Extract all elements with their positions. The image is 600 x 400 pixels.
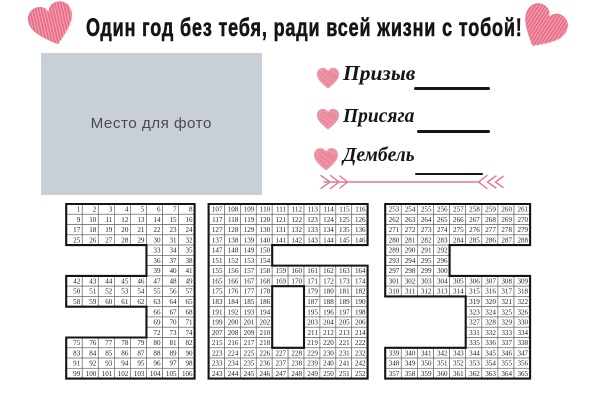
svg-text:49: 49 <box>186 277 194 285</box>
svg-text:259: 259 <box>485 206 496 214</box>
svg-text:120: 120 <box>260 216 271 224</box>
svg-text:47: 47 <box>153 277 161 285</box>
svg-text:75: 75 <box>73 339 81 347</box>
svg-text:124: 124 <box>323 216 334 224</box>
svg-text:92: 92 <box>89 360 97 368</box>
svg-text:284: 284 <box>453 236 464 244</box>
svg-text:88: 88 <box>153 349 161 357</box>
svg-text:157: 157 <box>244 267 255 275</box>
svg-text:150: 150 <box>260 247 271 255</box>
svg-text:135: 135 <box>339 226 350 234</box>
svg-text:9: 9 <box>77 216 81 224</box>
svg-text:272: 272 <box>405 226 416 234</box>
svg-text:339: 339 <box>389 349 400 357</box>
svg-text:27: 27 <box>105 236 113 244</box>
svg-text:274: 274 <box>437 226 448 234</box>
svg-text:101: 101 <box>102 370 113 378</box>
svg-text:295: 295 <box>421 257 432 265</box>
svg-text:94: 94 <box>121 360 129 368</box>
svg-text:158: 158 <box>260 267 271 275</box>
svg-text:78: 78 <box>121 339 129 347</box>
svg-text:309: 309 <box>517 277 528 285</box>
svg-text:260: 260 <box>501 206 512 214</box>
svg-text:44: 44 <box>105 277 113 285</box>
svg-text:261: 261 <box>517 206 528 214</box>
svg-text:235: 235 <box>244 360 255 368</box>
svg-text:66: 66 <box>153 308 161 316</box>
svg-text:256: 256 <box>437 206 448 214</box>
svg-text:242: 242 <box>355 360 366 368</box>
svg-text:82: 82 <box>186 339 194 347</box>
svg-text:93: 93 <box>105 360 113 368</box>
svg-text:20: 20 <box>121 226 129 234</box>
svg-text:37: 37 <box>169 257 177 265</box>
svg-text:347: 347 <box>517 349 528 357</box>
svg-text:220: 220 <box>323 339 334 347</box>
svg-text:8: 8 <box>189 206 193 214</box>
svg-text:64: 64 <box>169 298 177 306</box>
svg-text:177: 177 <box>244 288 255 296</box>
svg-text:290: 290 <box>405 247 416 255</box>
svg-text:134: 134 <box>323 226 334 234</box>
svg-text:318: 318 <box>517 288 528 296</box>
svg-text:342: 342 <box>437 349 448 357</box>
svg-text:15: 15 <box>169 216 177 224</box>
svg-text:53: 53 <box>121 288 129 296</box>
svg-text:40: 40 <box>169 267 177 275</box>
svg-text:1: 1 <box>77 206 81 214</box>
svg-text:154: 154 <box>260 257 271 265</box>
svg-text:52: 52 <box>105 288 113 296</box>
svg-text:365: 365 <box>517 370 528 378</box>
svg-text:91: 91 <box>73 360 81 368</box>
svg-text:21: 21 <box>137 226 145 234</box>
svg-text:286: 286 <box>485 236 496 244</box>
svg-text:241: 241 <box>339 360 350 368</box>
svg-text:206: 206 <box>355 319 366 327</box>
svg-text:10: 10 <box>89 216 97 224</box>
svg-text:153: 153 <box>244 257 255 265</box>
svg-text:268: 268 <box>485 216 496 224</box>
svg-text:71: 71 <box>186 319 194 327</box>
svg-text:144: 144 <box>323 236 334 244</box>
svg-text:194: 194 <box>260 308 271 316</box>
svg-text:270: 270 <box>517 216 528 224</box>
svg-text:352: 352 <box>453 360 464 368</box>
svg-text:321: 321 <box>501 298 512 306</box>
svg-text:275: 275 <box>453 226 464 234</box>
svg-text:252: 252 <box>355 370 366 378</box>
svg-text:139: 139 <box>244 236 255 244</box>
svg-text:145: 145 <box>339 236 350 244</box>
svg-text:121: 121 <box>275 216 286 224</box>
svg-text:5: 5 <box>141 206 145 214</box>
svg-text:160: 160 <box>291 267 302 275</box>
svg-text:87: 87 <box>137 349 145 357</box>
svg-text:288: 288 <box>517 236 528 244</box>
svg-text:251: 251 <box>339 370 350 378</box>
svg-text:115: 115 <box>339 206 350 214</box>
svg-text:114: 114 <box>323 206 334 214</box>
svg-text:231: 231 <box>339 349 350 357</box>
svg-text:45: 45 <box>121 277 129 285</box>
svg-text:322: 322 <box>517 298 528 306</box>
svg-text:127: 127 <box>212 226 223 234</box>
svg-text:211: 211 <box>308 329 319 337</box>
svg-text:173: 173 <box>339 277 350 285</box>
svg-text:29: 29 <box>137 236 145 244</box>
svg-text:324: 324 <box>485 308 496 316</box>
svg-text:207: 207 <box>212 329 223 337</box>
svg-text:6: 6 <box>157 206 161 214</box>
svg-text:90: 90 <box>186 349 194 357</box>
svg-text:41: 41 <box>186 267 194 275</box>
svg-text:330: 330 <box>517 319 528 327</box>
svg-text:80: 80 <box>153 339 161 347</box>
svg-text:161: 161 <box>307 267 318 275</box>
svg-text:205: 205 <box>339 319 350 327</box>
svg-text:292: 292 <box>437 247 448 255</box>
svg-text:130: 130 <box>260 226 271 234</box>
svg-text:156: 156 <box>228 267 239 275</box>
svg-text:327: 327 <box>469 319 480 327</box>
svg-text:103: 103 <box>134 370 145 378</box>
svg-text:129: 129 <box>244 226 255 234</box>
svg-text:54: 54 <box>137 288 145 296</box>
svg-text:111: 111 <box>276 206 287 214</box>
svg-text:253: 253 <box>389 206 400 214</box>
svg-text:98: 98 <box>186 360 194 368</box>
svg-text:316: 316 <box>485 288 496 296</box>
svg-text:25: 25 <box>73 236 81 244</box>
svg-text:332: 332 <box>485 329 496 337</box>
svg-text:305: 305 <box>453 277 464 285</box>
svg-text:267: 267 <box>469 216 480 224</box>
svg-text:247: 247 <box>275 370 286 378</box>
svg-text:140: 140 <box>260 236 271 244</box>
svg-text:222: 222 <box>355 339 366 347</box>
svg-text:133: 133 <box>307 226 318 234</box>
svg-text:255: 255 <box>421 206 432 214</box>
svg-text:72: 72 <box>153 329 161 337</box>
svg-text:281: 281 <box>405 236 416 244</box>
svg-text:179: 179 <box>307 288 318 296</box>
svg-text:228: 228 <box>291 349 302 357</box>
svg-text:300: 300 <box>437 267 448 275</box>
svg-text:276: 276 <box>469 226 480 234</box>
svg-text:331: 331 <box>469 329 480 337</box>
svg-text:30: 30 <box>153 236 161 244</box>
svg-text:278: 278 <box>501 226 512 234</box>
svg-text:58: 58 <box>73 298 81 306</box>
svg-text:117: 117 <box>212 216 223 224</box>
svg-text:155: 155 <box>212 267 223 275</box>
svg-text:70: 70 <box>169 319 177 327</box>
svg-text:79: 79 <box>137 339 145 347</box>
svg-text:31: 31 <box>169 236 177 244</box>
svg-text:257: 257 <box>453 206 464 214</box>
svg-text:11: 11 <box>106 216 113 224</box>
svg-text:287: 287 <box>501 236 512 244</box>
svg-text:202: 202 <box>260 319 271 327</box>
svg-text:248: 248 <box>291 370 302 378</box>
svg-text:193: 193 <box>244 308 255 316</box>
svg-text:204: 204 <box>323 319 334 327</box>
svg-text:215: 215 <box>212 339 223 347</box>
svg-text:289: 289 <box>389 247 400 255</box>
svg-text:280: 280 <box>389 236 400 244</box>
svg-text:201: 201 <box>244 319 255 327</box>
svg-text:232: 232 <box>355 349 366 357</box>
svg-text:56: 56 <box>169 288 177 296</box>
svg-text:119: 119 <box>244 216 255 224</box>
svg-text:112: 112 <box>292 206 303 214</box>
svg-text:109: 109 <box>244 206 255 214</box>
svg-text:108: 108 <box>228 206 239 214</box>
svg-text:230: 230 <box>323 349 334 357</box>
svg-text:185: 185 <box>244 298 255 306</box>
svg-text:319: 319 <box>469 298 480 306</box>
svg-text:325: 325 <box>501 308 512 316</box>
svg-text:50: 50 <box>73 288 81 296</box>
svg-text:28: 28 <box>121 236 129 244</box>
svg-text:224: 224 <box>228 349 239 357</box>
svg-text:355: 355 <box>501 360 512 368</box>
svg-text:212: 212 <box>323 329 334 337</box>
svg-text:89: 89 <box>169 349 177 357</box>
svg-text:349: 349 <box>405 360 416 368</box>
svg-text:262: 262 <box>389 216 400 224</box>
svg-text:128: 128 <box>228 226 239 234</box>
svg-text:182: 182 <box>355 288 366 296</box>
svg-text:141: 141 <box>275 236 286 244</box>
svg-text:344: 344 <box>469 349 480 357</box>
svg-text:59: 59 <box>89 298 97 306</box>
svg-text:165: 165 <box>212 277 223 285</box>
svg-text:308: 308 <box>501 277 512 285</box>
svg-text:335: 335 <box>469 339 480 347</box>
svg-text:213: 213 <box>339 329 350 337</box>
svg-text:351: 351 <box>437 360 448 368</box>
svg-text:354: 354 <box>485 360 496 368</box>
svg-text:341: 341 <box>421 349 432 357</box>
svg-text:217: 217 <box>244 339 255 347</box>
svg-text:131: 131 <box>275 226 286 234</box>
svg-text:4: 4 <box>125 206 129 214</box>
svg-text:301: 301 <box>389 277 400 285</box>
svg-text:148: 148 <box>228 247 239 255</box>
svg-text:100: 100 <box>86 370 97 378</box>
svg-text:234: 234 <box>228 360 239 368</box>
svg-text:32: 32 <box>186 236 194 244</box>
svg-text:110: 110 <box>260 206 271 214</box>
svg-text:311: 311 <box>405 288 416 296</box>
svg-text:285: 285 <box>469 236 480 244</box>
svg-text:19: 19 <box>105 226 113 234</box>
svg-text:219: 219 <box>307 339 318 347</box>
svg-text:203: 203 <box>307 319 318 327</box>
svg-text:22: 22 <box>153 226 161 234</box>
svg-text:164: 164 <box>355 267 366 275</box>
svg-text:245: 245 <box>244 370 255 378</box>
svg-text:307: 307 <box>485 277 496 285</box>
svg-text:226: 226 <box>260 349 271 357</box>
svg-text:86: 86 <box>121 349 129 357</box>
svg-text:326: 326 <box>517 308 528 316</box>
svg-text:113: 113 <box>308 206 319 214</box>
svg-text:126: 126 <box>355 216 366 224</box>
svg-text:269: 269 <box>501 216 512 224</box>
svg-text:35: 35 <box>186 247 194 255</box>
svg-text:166: 166 <box>228 277 239 285</box>
svg-text:363: 363 <box>485 370 496 378</box>
svg-text:283: 283 <box>437 236 448 244</box>
svg-text:362: 362 <box>469 370 480 378</box>
svg-text:143: 143 <box>307 236 318 244</box>
svg-text:174: 174 <box>355 277 366 285</box>
svg-text:181: 181 <box>339 288 350 296</box>
svg-text:168: 168 <box>260 277 271 285</box>
svg-text:343: 343 <box>453 349 464 357</box>
svg-text:315: 315 <box>469 288 480 296</box>
svg-text:12: 12 <box>121 216 129 224</box>
svg-text:299: 299 <box>421 267 432 275</box>
svg-text:296: 296 <box>437 257 448 265</box>
svg-text:265: 265 <box>437 216 448 224</box>
svg-text:3: 3 <box>109 206 113 214</box>
svg-text:210: 210 <box>260 329 271 337</box>
svg-text:69: 69 <box>153 319 161 327</box>
svg-text:282: 282 <box>421 236 432 244</box>
svg-text:97: 97 <box>169 360 177 368</box>
svg-text:51: 51 <box>89 288 97 296</box>
svg-text:216: 216 <box>228 339 239 347</box>
svg-text:62: 62 <box>137 298 145 306</box>
svg-text:334: 334 <box>517 329 528 337</box>
svg-text:359: 359 <box>421 370 432 378</box>
svg-text:244: 244 <box>228 370 239 378</box>
svg-text:306: 306 <box>469 277 480 285</box>
svg-text:187: 187 <box>307 298 318 306</box>
svg-text:239: 239 <box>307 360 318 368</box>
svg-text:96: 96 <box>153 360 161 368</box>
svg-text:46: 46 <box>137 277 145 285</box>
svg-text:169: 169 <box>275 277 286 285</box>
svg-text:236: 236 <box>260 360 271 368</box>
svg-text:180: 180 <box>323 288 334 296</box>
svg-text:209: 209 <box>244 329 255 337</box>
svg-text:320: 320 <box>485 298 496 306</box>
svg-text:329: 329 <box>501 319 512 327</box>
svg-text:314: 314 <box>453 288 464 296</box>
svg-text:264: 264 <box>421 216 432 224</box>
svg-text:197: 197 <box>339 308 350 316</box>
svg-text:99: 99 <box>73 370 81 378</box>
svg-text:147: 147 <box>212 247 223 255</box>
svg-text:360: 360 <box>437 370 448 378</box>
svg-text:42: 42 <box>73 277 81 285</box>
svg-text:356: 356 <box>517 360 528 368</box>
svg-text:337: 337 <box>501 339 512 347</box>
svg-text:137: 137 <box>212 236 223 244</box>
svg-text:340: 340 <box>405 349 416 357</box>
svg-text:136: 136 <box>355 226 366 234</box>
svg-text:2: 2 <box>93 206 97 214</box>
svg-text:132: 132 <box>291 226 302 234</box>
svg-text:189: 189 <box>339 298 350 306</box>
svg-text:39: 39 <box>153 267 161 275</box>
svg-text:184: 184 <box>228 298 239 306</box>
svg-text:76: 76 <box>89 339 97 347</box>
svg-text:298: 298 <box>405 267 416 275</box>
svg-text:304: 304 <box>437 277 448 285</box>
svg-text:83: 83 <box>73 349 81 357</box>
svg-text:23: 23 <box>169 226 177 234</box>
svg-text:138: 138 <box>228 236 239 244</box>
svg-text:348: 348 <box>389 360 400 368</box>
svg-text:258: 258 <box>469 206 480 214</box>
svg-text:198: 198 <box>355 308 366 316</box>
svg-text:102: 102 <box>118 370 129 378</box>
svg-text:294: 294 <box>405 257 416 265</box>
svg-text:271: 271 <box>389 226 400 234</box>
svg-text:36: 36 <box>153 257 161 265</box>
svg-text:142: 142 <box>291 236 302 244</box>
svg-text:364: 364 <box>501 370 512 378</box>
svg-text:297: 297 <box>389 267 400 275</box>
svg-text:67: 67 <box>169 308 177 316</box>
svg-text:106: 106 <box>182 370 193 378</box>
svg-text:176: 176 <box>228 288 239 296</box>
svg-text:188: 188 <box>323 298 334 306</box>
svg-text:116: 116 <box>355 206 366 214</box>
svg-text:291: 291 <box>421 247 432 255</box>
svg-text:146: 146 <box>355 236 366 244</box>
svg-text:266: 266 <box>453 216 464 224</box>
svg-text:151: 151 <box>212 257 223 265</box>
svg-text:125: 125 <box>339 216 350 224</box>
svg-text:214: 214 <box>355 329 366 337</box>
svg-text:43: 43 <box>89 277 97 285</box>
svg-text:254: 254 <box>405 206 416 214</box>
svg-text:149: 149 <box>244 247 255 255</box>
svg-text:167: 167 <box>244 277 255 285</box>
svg-text:170: 170 <box>291 277 302 285</box>
svg-text:229: 229 <box>307 349 318 357</box>
svg-text:237: 237 <box>275 360 286 368</box>
svg-text:175: 175 <box>212 288 223 296</box>
svg-text:13: 13 <box>137 216 145 224</box>
svg-text:200: 200 <box>228 319 239 327</box>
svg-text:63: 63 <box>153 298 161 306</box>
svg-text:178: 178 <box>260 288 271 296</box>
svg-text:163: 163 <box>339 267 350 275</box>
svg-text:353: 353 <box>469 360 480 368</box>
svg-text:199: 199 <box>212 319 223 327</box>
svg-text:16: 16 <box>186 216 194 224</box>
svg-text:171: 171 <box>307 277 318 285</box>
svg-text:246: 246 <box>260 370 271 378</box>
svg-text:238: 238 <box>291 360 302 368</box>
svg-text:328: 328 <box>485 319 496 327</box>
svg-text:95: 95 <box>137 360 145 368</box>
svg-text:250: 250 <box>323 370 334 378</box>
svg-text:323: 323 <box>469 308 480 316</box>
svg-text:357: 357 <box>389 370 400 378</box>
svg-text:221: 221 <box>339 339 350 347</box>
svg-text:77: 77 <box>105 339 113 347</box>
svg-text:162: 162 <box>323 267 334 275</box>
